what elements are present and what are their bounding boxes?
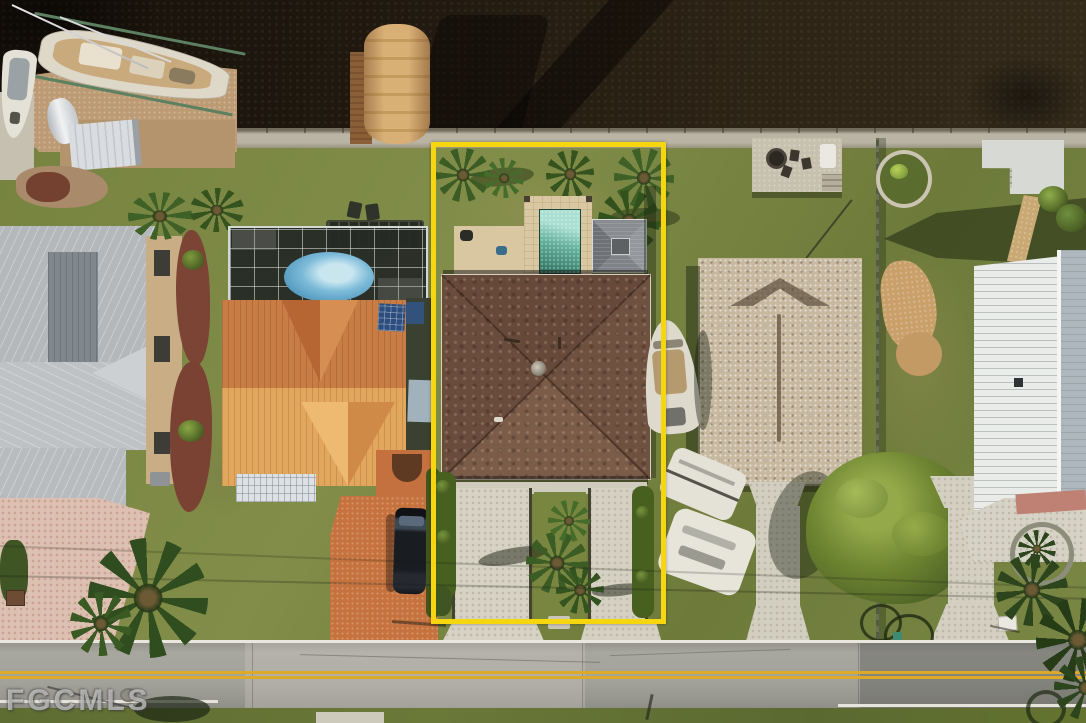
tree-highlight: [836, 478, 888, 518]
dock-steps: [988, 168, 1012, 188]
lean-to-roof: [407, 380, 432, 423]
round-garden-bed: [876, 150, 932, 208]
solar-panel-small: [406, 302, 424, 324]
paver-patio-side-lower: [896, 332, 942, 376]
arch-opening: [392, 454, 422, 482]
waterfront-patio: [752, 138, 842, 192]
ridge-shadow-arrow: [730, 278, 830, 306]
patio-chair: [801, 157, 812, 169]
water-shadow-right: [965, 55, 1086, 137]
tree-highlight: [892, 512, 952, 556]
property-boundary-outline: [431, 142, 666, 624]
window: [154, 250, 170, 276]
roof-ridge: [777, 314, 781, 442]
enclosure-deck-corner: [232, 230, 276, 250]
small-boat-interior: [7, 57, 31, 101]
center-line-yellow: [0, 671, 1086, 674]
covered-table: [820, 144, 836, 168]
aerial-photo: FGCMLS: [0, 0, 1086, 723]
patio-chair: [780, 165, 792, 178]
shrub: [178, 420, 204, 442]
shrub: [182, 250, 204, 270]
palm-tree-foreground: [70, 592, 132, 656]
patio-steps: [822, 174, 842, 191]
bottom-driveway-apron: [316, 712, 384, 723]
roof-ridge-cap: [1057, 250, 1061, 516]
mls-watermark: FGCMLS: [6, 684, 151, 718]
boat-interior-mark: [678, 545, 727, 571]
flagpole-shadow: [805, 199, 852, 259]
dark-suv: [393, 507, 429, 594]
ac-unit: [150, 472, 170, 486]
lounge-chair: [365, 203, 380, 221]
window: [154, 336, 170, 362]
center-line-yellow: [0, 676, 1086, 679]
road-light-patch: [245, 640, 585, 710]
pavement-seam: [582, 640, 583, 710]
utility-pad: [6, 590, 25, 606]
bright-plant: [890, 164, 908, 179]
solar-panel: [377, 303, 405, 331]
pavement-seam: [252, 640, 253, 710]
garden-shrub: [1056, 204, 1086, 232]
suv-windshield: [399, 516, 424, 527]
window: [154, 432, 170, 454]
roof-vent-dark: [1014, 378, 1023, 387]
boat-shadow: [694, 330, 712, 430]
oval-pool: [284, 252, 374, 302]
palm-tree: [128, 192, 192, 240]
gray-house-courtyard: [48, 252, 98, 362]
pavement-seam: [858, 640, 859, 710]
trailer-bar: [666, 469, 739, 502]
patio-shadow: [752, 192, 842, 198]
boat-canopy: [364, 24, 430, 144]
pool-screen-enclosure: [228, 226, 428, 308]
storage-shed: [68, 119, 142, 171]
red-mulch-patch: [26, 172, 70, 202]
orange-roof-gable: [272, 300, 368, 382]
porch-lattice: [236, 474, 316, 502]
patio-chair: [789, 149, 799, 161]
white-metal-roof-right-face: [1060, 250, 1086, 516]
right-house-roof: [698, 258, 862, 486]
white-boat-trailer: [655, 505, 759, 598]
lounge-chair: [346, 201, 362, 219]
small-boat-engine: [9, 111, 20, 124]
